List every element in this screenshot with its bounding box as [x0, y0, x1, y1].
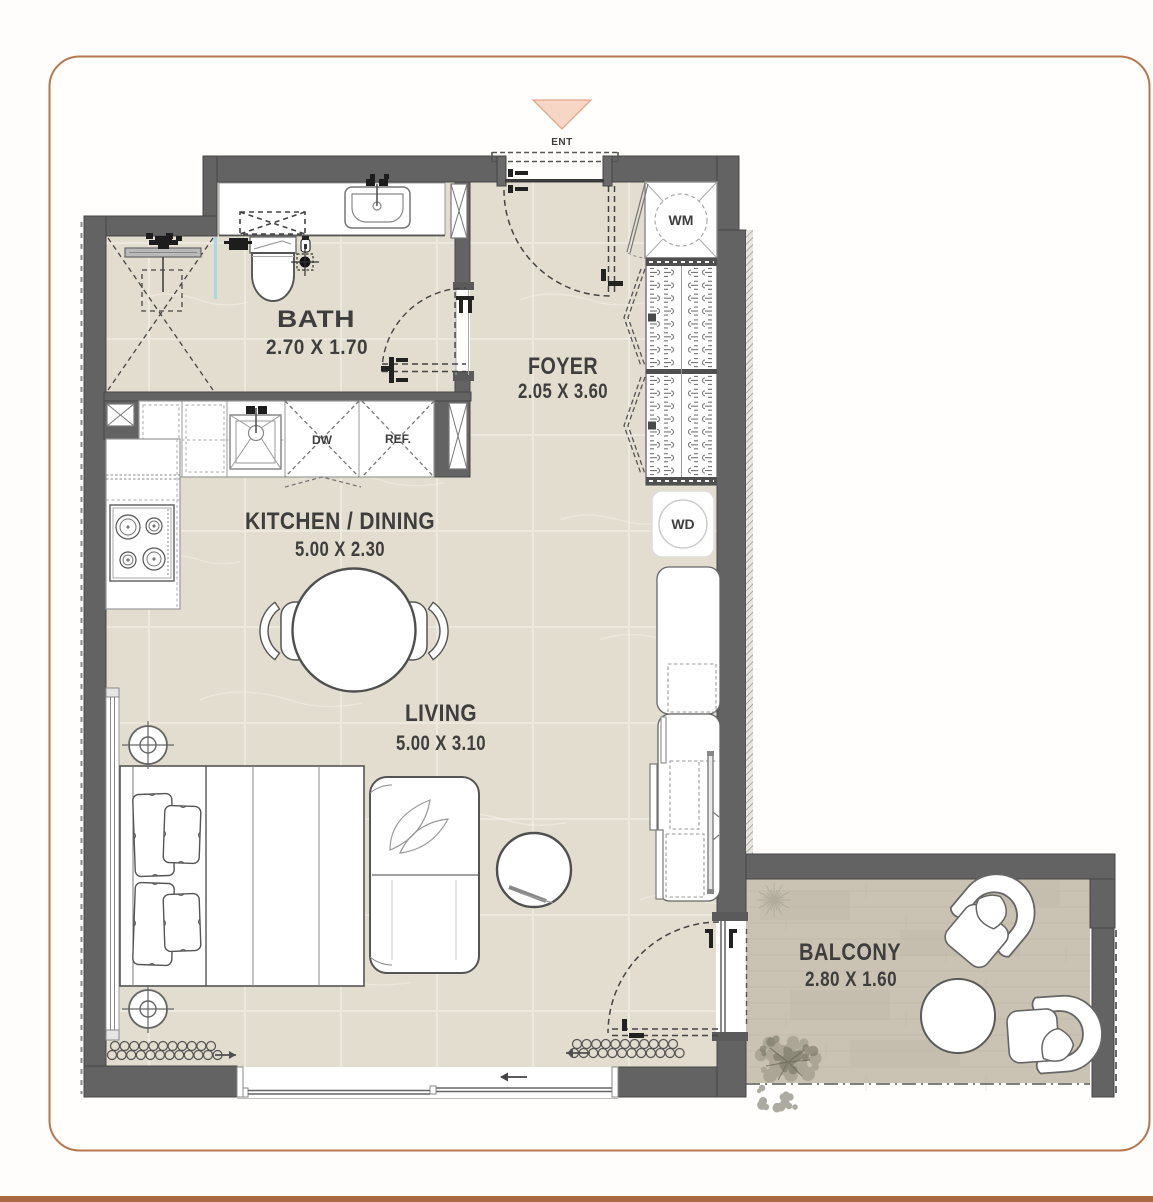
svg-text:DW: DW	[312, 433, 333, 447]
svg-text:REF.: REF.	[385, 432, 411, 446]
svg-text:KITCHEN / DINING: KITCHEN / DINING	[245, 508, 435, 535]
svg-text:5.00 X 3.10: 5.00 X 3.10	[396, 732, 486, 755]
svg-text:BALCONY: BALCONY	[799, 939, 901, 966]
svg-text:ENT: ENT	[551, 137, 573, 148]
svg-text:2.80 X 1.60: 2.80 X 1.60	[805, 968, 897, 991]
svg-text:2.05 X 3.60: 2.05 X 3.60	[518, 380, 608, 403]
svg-text:WD: WD	[671, 516, 694, 532]
svg-text:BATH: BATH	[277, 306, 355, 333]
svg-text:5.00 X 2.30: 5.00 X 2.30	[295, 538, 385, 561]
svg-text:FOYER: FOYER	[528, 353, 598, 380]
svg-text:WM: WM	[669, 212, 694, 228]
svg-text:2.70 X 1.70: 2.70 X 1.70	[266, 336, 368, 359]
svg-text:LIVING: LIVING	[405, 700, 477, 727]
